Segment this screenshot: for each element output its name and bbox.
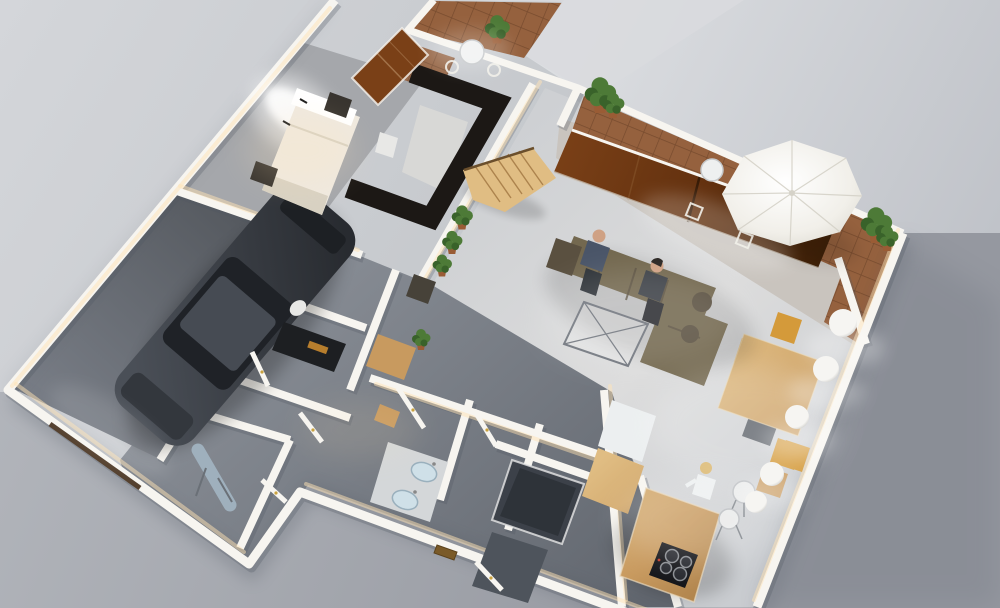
pendant-lamp	[813, 356, 839, 382]
pendant-lamp	[760, 462, 784, 486]
pendant-lamp	[785, 405, 809, 429]
floor-plan-render	[0, 0, 1000, 608]
pendant-lamp	[829, 309, 857, 337]
patio-table	[701, 159, 723, 181]
pendant-lamp	[745, 491, 767, 513]
floor-plan-stage	[0, 0, 1000, 608]
